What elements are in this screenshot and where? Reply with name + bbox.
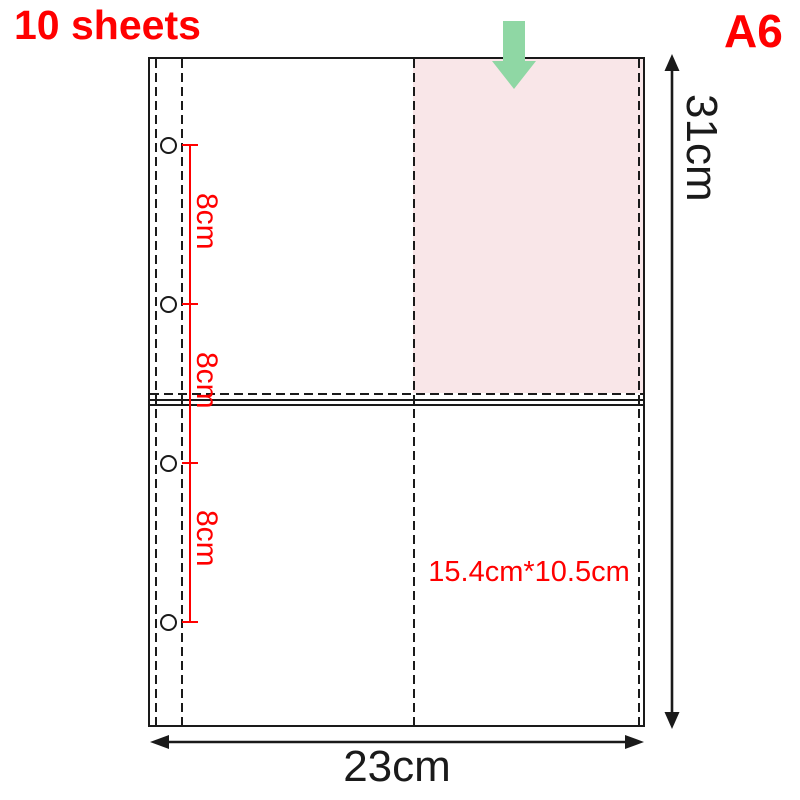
hole-spacing-label: 8cm <box>189 193 223 250</box>
measure-tick <box>182 462 198 464</box>
binder-hole <box>160 296 177 313</box>
measure-tick <box>182 144 198 146</box>
pocket-divider <box>150 399 643 406</box>
binder-hole <box>160 455 177 472</box>
height-label: 31cm <box>676 94 726 202</box>
stitch-line-left-inner <box>155 59 157 725</box>
pocket-size-label: 15.4cm*10.5cm <box>413 556 645 589</box>
down-arrow-icon <box>489 21 539 91</box>
measure-tick <box>182 621 198 623</box>
sheet-count-label: 10 sheets <box>14 2 201 49</box>
binder-hole <box>160 137 177 154</box>
binder-hole <box>160 614 177 631</box>
hole-spacing-label: 8cm <box>189 510 223 567</box>
stitch-line-center <box>413 59 415 725</box>
width-label: 23cm <box>297 742 497 792</box>
measure-tick <box>182 303 198 305</box>
stitch-line-left-outer <box>181 59 183 725</box>
stitch-line-middle-horizontal <box>150 393 643 395</box>
stitch-line-right <box>638 59 640 725</box>
size-code-label: A6 <box>724 4 783 58</box>
pocket-highlight <box>413 59 643 393</box>
product-diagram: 10 sheets A6 8cm 8cm 8cm 15.4cm*10.5cm 3… <box>0 0 800 800</box>
hole-spacing-label: 8cm <box>189 352 223 409</box>
